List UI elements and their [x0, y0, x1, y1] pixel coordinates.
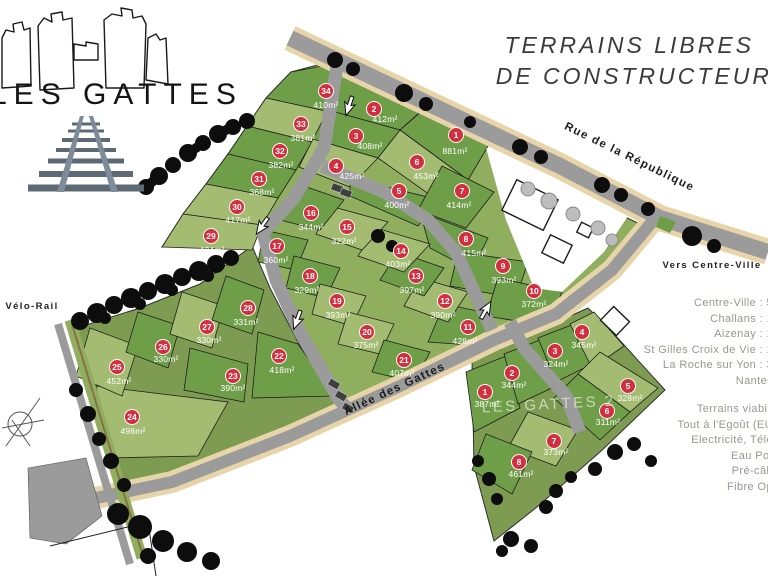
svg-text:393m²: 393m²: [491, 275, 516, 285]
svg-text:331m²: 331m²: [233, 317, 258, 327]
svg-text:1: 1: [454, 130, 459, 140]
compass-sketch: [2, 398, 44, 446]
tree-icon: [103, 453, 119, 469]
tree-icon: [80, 406, 96, 422]
tree-icon: [134, 298, 146, 310]
svg-text:311m²: 311m²: [596, 417, 620, 427]
svg-text:425m²: 425m²: [339, 171, 364, 181]
service-item: Terrains viabili: [677, 402, 768, 418]
svg-text:328m²: 328m²: [617, 393, 642, 403]
tree-sketch-icon: [606, 234, 618, 246]
title-line-1: TERRAINS LIBRES: [348, 30, 768, 61]
svg-text:453m²: 453m²: [413, 171, 438, 181]
svg-text:13: 13: [411, 271, 421, 281]
svg-text:424m²: 424m²: [199, 245, 224, 255]
tree-icon: [139, 282, 157, 300]
tree-icon: [627, 437, 641, 451]
svg-text:461m²: 461m²: [508, 469, 533, 479]
parking-area: [28, 458, 102, 544]
svg-text:34: 34: [321, 86, 331, 96]
tree-icon: [491, 493, 503, 505]
distance-item: La Roche sur Yon : 3: [644, 358, 768, 374]
tree-sketch-icon: [541, 193, 557, 209]
svg-text:498m²: 498m²: [120, 426, 145, 436]
svg-text:17: 17: [272, 241, 282, 251]
tree-icon: [327, 52, 343, 68]
tree-icon: [140, 548, 156, 564]
svg-text:390m²: 390m²: [430, 310, 455, 320]
svg-text:29: 29: [206, 231, 216, 241]
svg-text:417m²: 417m²: [225, 215, 250, 225]
svg-text:452m²: 452m²: [106, 376, 131, 386]
tree-icon: [707, 239, 721, 253]
svg-text:3: 3: [553, 346, 558, 356]
tree-icon: [503, 531, 519, 547]
svg-text:11: 11: [464, 322, 473, 332]
title-line-2: DE CONSTRUCTEUR: [348, 61, 768, 92]
svg-text:360m²: 360m²: [263, 255, 288, 265]
svg-text:344m²: 344m²: [298, 222, 323, 232]
svg-text:4: 4: [334, 161, 339, 171]
svg-text:1: 1: [483, 387, 488, 397]
tree-icon: [99, 312, 111, 324]
svg-text:21: 21: [399, 355, 409, 365]
tree-sketch-icon: [521, 182, 535, 196]
tree-icon: [152, 530, 174, 552]
svg-text:2: 2: [372, 104, 377, 114]
svg-text:382m²: 382m²: [268, 160, 293, 170]
svg-text:19: 19: [332, 296, 342, 306]
tree-icon: [565, 471, 577, 483]
svg-text:412m²: 412m²: [372, 114, 397, 124]
tree-icon: [147, 177, 157, 187]
services-list: Terrains viabiliTout à l'Egoût (EUElectr…: [677, 402, 768, 495]
tree-icon: [223, 250, 239, 266]
tree-icon: [177, 542, 197, 562]
tree-icon: [166, 284, 178, 296]
svg-text:344m²: 344m²: [501, 380, 526, 390]
svg-text:372m²: 372m²: [521, 299, 546, 309]
distance-item: St Gilles Croix de Vie : 1: [644, 343, 768, 359]
svg-text:375m²: 375m²: [353, 340, 378, 350]
svg-text:28: 28: [243, 303, 253, 313]
svg-text:30: 30: [232, 202, 242, 212]
tree-icon: [69, 383, 83, 397]
tree-icon: [549, 484, 563, 498]
tree-icon: [202, 270, 214, 282]
svg-text:329m²: 329m²: [294, 285, 319, 295]
tree-icon: [419, 97, 433, 111]
svg-text:9: 9: [501, 261, 506, 271]
svg-text:14: 14: [396, 246, 406, 256]
svg-text:12: 12: [440, 296, 450, 306]
tree-icon: [472, 455, 484, 467]
service-item: Tout à l'Egoût (EU: [677, 418, 768, 434]
svg-text:18: 18: [305, 271, 315, 281]
svg-text:381m²: 381m²: [290, 133, 315, 143]
svg-text:10: 10: [529, 286, 539, 296]
service-item: Electricité, Télé: [677, 433, 768, 449]
svg-text:31: 31: [254, 174, 264, 184]
service-item: Pré-câb: [677, 464, 768, 480]
svg-text:415m²: 415m²: [461, 248, 486, 258]
svg-text:393m²: 393m²: [325, 310, 350, 320]
svg-text:24: 24: [127, 412, 137, 422]
svg-text:23: 23: [228, 371, 238, 381]
svg-text:428m²: 428m²: [452, 336, 477, 346]
logo: LES GATTES: [0, 8, 243, 192]
distance-item: Challans : 1: [644, 312, 768, 328]
tree-icon: [512, 139, 528, 155]
svg-text:8: 8: [464, 234, 469, 244]
tree-icon: [594, 177, 610, 193]
svg-text:20: 20: [362, 327, 372, 337]
distance-item: Nantes: [644, 374, 768, 390]
tree-icon: [539, 500, 553, 514]
tree-icon: [105, 296, 123, 314]
tree-icon: [534, 150, 548, 164]
tree-icon: [524, 539, 538, 553]
svg-text:27: 27: [202, 322, 212, 332]
street-label-vers-centre-ville: Vers Centre-Ville: [662, 260, 761, 271]
svg-text:881m²: 881m²: [442, 146, 467, 156]
svg-text:22: 22: [274, 351, 284, 361]
tree-icon: [165, 157, 181, 173]
svg-text:5: 5: [397, 186, 402, 196]
svg-text:368m²: 368m²: [249, 187, 274, 197]
page: { "branding": { "logo_text": "LES GATTES…: [0, 0, 768, 576]
svg-text:410m²: 410m²: [313, 100, 338, 110]
logo-wordmark: LES GATTES: [0, 78, 243, 111]
service-item: Fibre Op: [677, 480, 768, 496]
svg-text:15: 15: [342, 222, 352, 232]
tree-icon: [371, 229, 385, 243]
svg-text:16: 16: [306, 208, 316, 218]
svg-text:2: 2: [510, 368, 515, 378]
tree-icon: [614, 188, 628, 202]
tree-icon: [202, 552, 220, 570]
svg-text:408m²: 408m²: [357, 141, 382, 151]
service-item: Eau Pot: [677, 449, 768, 465]
tree-icon: [117, 478, 131, 492]
svg-text:403m²: 403m²: [385, 259, 410, 269]
tree-icon: [92, 432, 106, 446]
tree-icon: [641, 202, 655, 216]
tree-icon: [239, 113, 255, 129]
svg-text:397m²: 397m²: [399, 285, 424, 295]
distances-list: Centre-Ville : 5Challans : 1Aizenay : 1S…: [644, 296, 768, 389]
svg-text:418m²: 418m²: [269, 365, 294, 375]
svg-text:25: 25: [112, 362, 122, 372]
tree-icon: [464, 116, 476, 128]
svg-text:330m²: 330m²: [196, 335, 221, 345]
tree-sketch-icon: [566, 207, 580, 221]
tree-icon: [482, 472, 496, 486]
railway-icon: [28, 116, 144, 192]
svg-text:324m²: 324m²: [543, 359, 568, 369]
svg-text:373m²: 373m²: [543, 447, 568, 457]
tree-icon: [173, 268, 191, 286]
tree-icon: [645, 455, 657, 467]
svg-text:400m²: 400m²: [384, 200, 409, 210]
svg-text:7: 7: [460, 186, 465, 196]
tree-icon: [107, 503, 129, 525]
svg-text:5: 5: [626, 381, 631, 391]
tree-icon: [496, 545, 508, 557]
tree-icon: [682, 226, 702, 246]
tree-icon: [588, 462, 602, 476]
svg-text:8: 8: [517, 457, 522, 467]
tree-icon: [607, 444, 623, 460]
svg-text:32: 32: [275, 146, 285, 156]
page-title: TERRAINS LIBRES DE CONSTRUCTEUR: [348, 30, 768, 92]
svg-text:345m²: 345m²: [571, 340, 596, 350]
svg-text:26: 26: [158, 342, 168, 352]
tree-icon: [221, 125, 231, 135]
tree-icon: [128, 515, 152, 539]
svg-text:3: 3: [354, 131, 359, 141]
distance-item: Aizenay : 1: [644, 327, 768, 343]
svg-text:390m²: 390m²: [220, 383, 245, 393]
svg-text:330m²: 330m²: [153, 354, 178, 364]
tree-sketch-icon: [591, 221, 605, 235]
svg-text:7: 7: [552, 436, 557, 446]
svg-text:33: 33: [296, 119, 306, 129]
distance-item: Centre-Ville : 5: [644, 296, 768, 312]
tree-icon: [71, 312, 89, 330]
svg-text:4: 4: [580, 327, 585, 337]
tree-icon: [191, 143, 201, 153]
svg-text:322m²: 322m²: [331, 236, 356, 246]
svg-text:414m²: 414m²: [446, 200, 471, 210]
svg-text:6: 6: [415, 157, 420, 167]
street-label-velo-rail: Vélo-Rail: [5, 301, 58, 312]
